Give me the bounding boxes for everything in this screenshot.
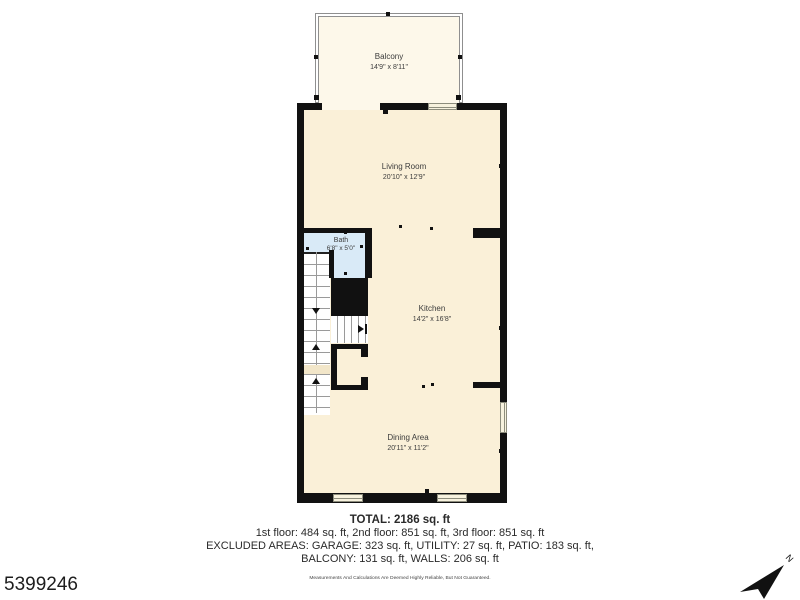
tick-mark — [499, 449, 503, 453]
wall-left — [297, 103, 304, 503]
tick-mark — [425, 489, 429, 493]
stair-arrow-up-1 — [312, 344, 320, 350]
wall-stub-kitchen-top — [473, 228, 500, 238]
window-bottom-left — [333, 494, 363, 502]
window-bottom-right — [437, 494, 467, 502]
floor-plan-page: Balcony 14'9" x 8'11" Bath 6'8" x 5'0" — [0, 0, 800, 600]
tick-mark — [456, 95, 461, 100]
bath-wall-top — [304, 228, 372, 233]
total-area-text: TOTAL: 2186 sq. ft — [0, 513, 800, 527]
north-label: N — [784, 552, 795, 564]
wall-stub-kitchen-bottom — [473, 382, 500, 388]
tick-mark — [300, 449, 304, 453]
closet-floor — [337, 349, 361, 385]
tick-mark — [499, 326, 503, 330]
tick-mark — [458, 55, 462, 59]
excluded-areas-text-2: BALCONY: 131 sq. ft, WALLS: 206 sq. ft — [0, 553, 800, 566]
tick-mark — [386, 12, 390, 16]
tick-mark — [314, 55, 318, 59]
tick-mark — [430, 227, 433, 230]
north-arrow: N — [735, 548, 795, 600]
bath-name: Bath — [327, 236, 355, 245]
tick-mark — [422, 385, 425, 388]
balcony-door-opening — [322, 103, 380, 110]
wall-right — [500, 103, 507, 503]
bath-wall-right — [365, 233, 372, 278]
stair-bath-divider — [329, 250, 334, 278]
disclaimer-text: Measurements And Calculations Are Deemed… — [72, 576, 728, 581]
area-summary: TOTAL: 2186 sq. ft 1st floor: 484 sq. ft… — [0, 513, 800, 581]
window-top — [428, 103, 457, 110]
dining-area-name: Dining Area — [387, 433, 428, 444]
north-arrow-icon: N — [735, 548, 795, 600]
tick-mark — [344, 272, 347, 275]
tick-mark — [360, 245, 363, 248]
tick-mark — [300, 164, 304, 168]
closet-wall-left — [331, 344, 337, 390]
room-label-dining-area: Dining Area 20'11" x 11'2" — [387, 433, 428, 453]
living-room-name: Living Room — [382, 162, 426, 173]
kitchen-name: Kitchen — [413, 304, 451, 315]
room-label-balcony: Balcony 14'9" x 8'11" — [370, 52, 408, 72]
stair-arrow-up-2 — [312, 378, 320, 384]
excluded-areas-text-1: EXCLUDED AREAS: GARAGE: 323 sq. ft, UTIL… — [0, 540, 800, 553]
balcony-name: Balcony — [370, 52, 408, 63]
tick-mark — [306, 247, 309, 250]
room-label-living-room: Living Room 20'10" x 12'9" — [382, 162, 426, 182]
tick-mark — [401, 103, 405, 107]
stair-arrow-right — [358, 325, 364, 333]
wall-bottom — [297, 493, 507, 503]
stair-landing-band — [304, 365, 330, 374]
living-room-dims: 20'10" x 12'9" — [382, 173, 426, 182]
listing-id: 5399246 — [4, 574, 78, 596]
window-right — [500, 402, 507, 433]
tick-mark — [314, 95, 319, 100]
dining-area-dims: 20'11" x 11'2" — [387, 444, 428, 453]
closet-stub-bottom-right — [361, 377, 368, 390]
floor-areas-text: 1st floor: 484 sq. ft, 2nd floor: 851 sq… — [0, 527, 800, 540]
stair-arrow-down — [312, 308, 320, 314]
tick-mark — [383, 110, 388, 114]
tick-mark — [499, 164, 503, 168]
tick-mark — [399, 225, 402, 228]
kitchen-dims: 14'2" x 16'8" — [413, 315, 451, 324]
stair-arrow-stop — [365, 324, 367, 334]
tick-mark — [344, 231, 347, 234]
tick-mark — [431, 383, 434, 386]
stair-center-line — [316, 252, 317, 413]
staircase-vertical-flight — [304, 252, 330, 415]
balcony-dims: 14'9" x 8'11" — [370, 63, 408, 72]
room-label-kitchen: Kitchen 14'2" x 16'8" — [413, 304, 451, 324]
closet-stub-top-right — [361, 344, 368, 357]
stair-core-black — [331, 278, 368, 316]
